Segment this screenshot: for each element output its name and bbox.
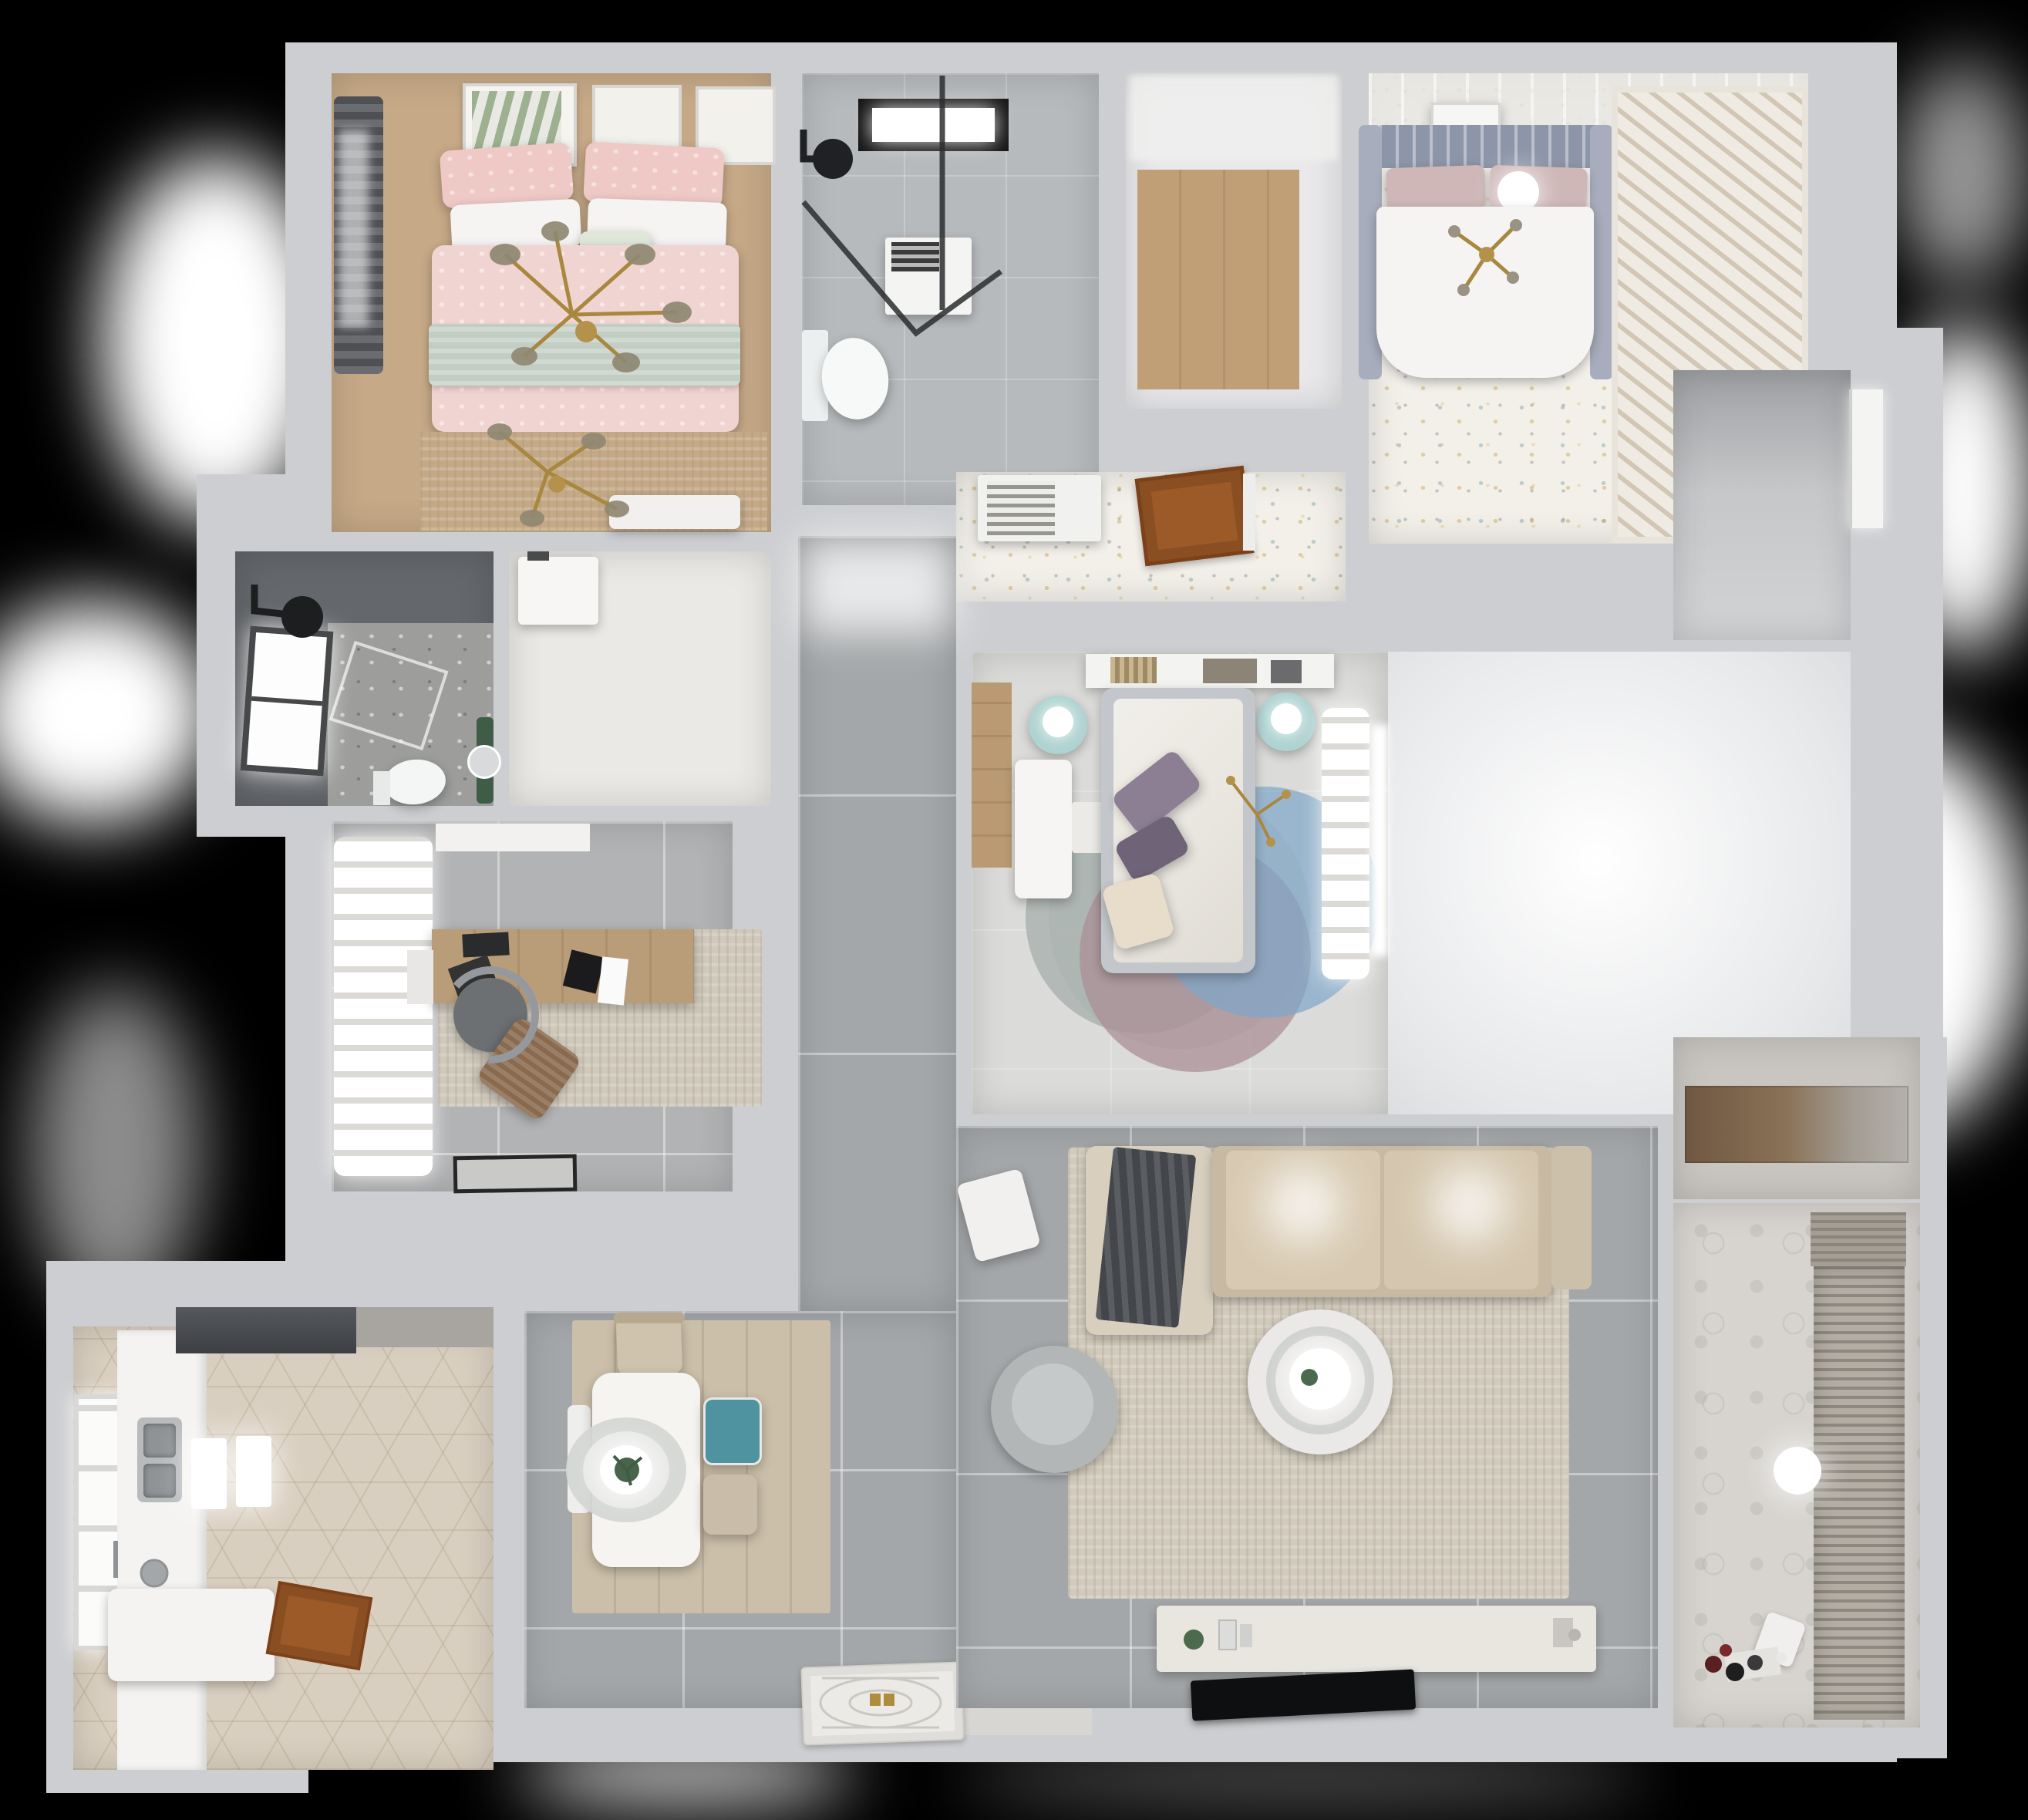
coffee-table-core (1289, 1348, 1351, 1410)
balcony-blinds (1814, 1266, 1905, 1720)
bedroom-3-desk-shelf (1072, 802, 1104, 853)
utility-dark-item (527, 551, 549, 561)
walk-in-closet-wood-floor (1137, 170, 1299, 389)
shelf-books (1203, 659, 1257, 683)
dining-chair-backbar (614, 1313, 685, 1323)
storage-wood-cabinet (1685, 1086, 1908, 1163)
kitchen-counter-top (356, 1307, 494, 1347)
side-room-floor (1673, 370, 1851, 640)
kitchen-counter-left (117, 1330, 207, 1770)
light-glow (0, 602, 216, 825)
bedroom-1-sage-blanket (429, 324, 740, 386)
ac-vent-slats (987, 481, 1055, 535)
sofa-armrest (1551, 1146, 1592, 1289)
shelf-books (1271, 660, 1302, 683)
round-mirror (467, 745, 501, 779)
bedroom-1-bench (609, 495, 740, 529)
nightstand-lamp (1271, 703, 1302, 734)
open-door-wood (1135, 466, 1255, 566)
study-curtain (334, 837, 433, 1176)
hallway-light-glow (802, 540, 952, 632)
bedroom-3-desk (1015, 760, 1072, 898)
shower-room-window (241, 625, 334, 776)
door-frame (1243, 474, 1255, 551)
dining-chair-beige (616, 1316, 683, 1376)
study-cabinet (436, 824, 590, 851)
study-doormat (453, 1154, 578, 1194)
light-glow (1897, 62, 2028, 285)
bedroom-2-headboard (1379, 125, 1598, 168)
study-laptop (462, 932, 509, 957)
bedroom-3-curtain (1322, 708, 1369, 979)
hallway-floor (798, 536, 956, 1311)
dining-chair-teal (703, 1397, 762, 1465)
bathroom-1-cabinet-vent (891, 242, 939, 271)
sofa-light-sheen (1431, 1166, 1508, 1243)
side-room-door (1849, 389, 1883, 528)
balcony-blind-roll (1811, 1212, 1906, 1266)
sofa-light-sheen (1265, 1166, 1342, 1243)
bed-pillow-pink (440, 142, 574, 209)
walk-in-closet-ceiling-glow (1130, 76, 1338, 160)
kitchen-island (108, 1589, 275, 1681)
range-hood (176, 1307, 356, 1353)
console-frame (1218, 1619, 1237, 1650)
kitchen-sink-basin (143, 1424, 176, 1458)
toilet-tank (373, 771, 390, 805)
bedroom-1-window-light (339, 130, 369, 327)
bedroom-2-duvet (1376, 207, 1594, 378)
bedroom-3-window-light (1371, 725, 1388, 956)
study-desk-return (407, 950, 433, 1004)
armchair-seat (1012, 1363, 1093, 1445)
console-frame (1240, 1624, 1252, 1647)
floorplan-render (0, 0, 2028, 1820)
study-paper (598, 956, 628, 1005)
bed-pillow-dusty-pink (1386, 165, 1486, 211)
shelf-books (1110, 657, 1157, 683)
dining-chair-beige (703, 1475, 757, 1535)
utility-cabinet (518, 557, 598, 625)
bathroom-1-skylight-glass (872, 108, 995, 142)
pendant-lamp-core (600, 1445, 652, 1495)
nightstand-lamp (1043, 706, 1073, 737)
balcony-ball-light (1774, 1447, 1821, 1495)
kitchen-light-panel (191, 1438, 227, 1509)
kitchen-light-panel (236, 1436, 271, 1507)
console-deco (1553, 1618, 1573, 1647)
kitchen-sink-basin (143, 1464, 176, 1498)
bedroom-3-wood-wall-panel (972, 682, 1012, 868)
entry-front-door (800, 1661, 964, 1745)
